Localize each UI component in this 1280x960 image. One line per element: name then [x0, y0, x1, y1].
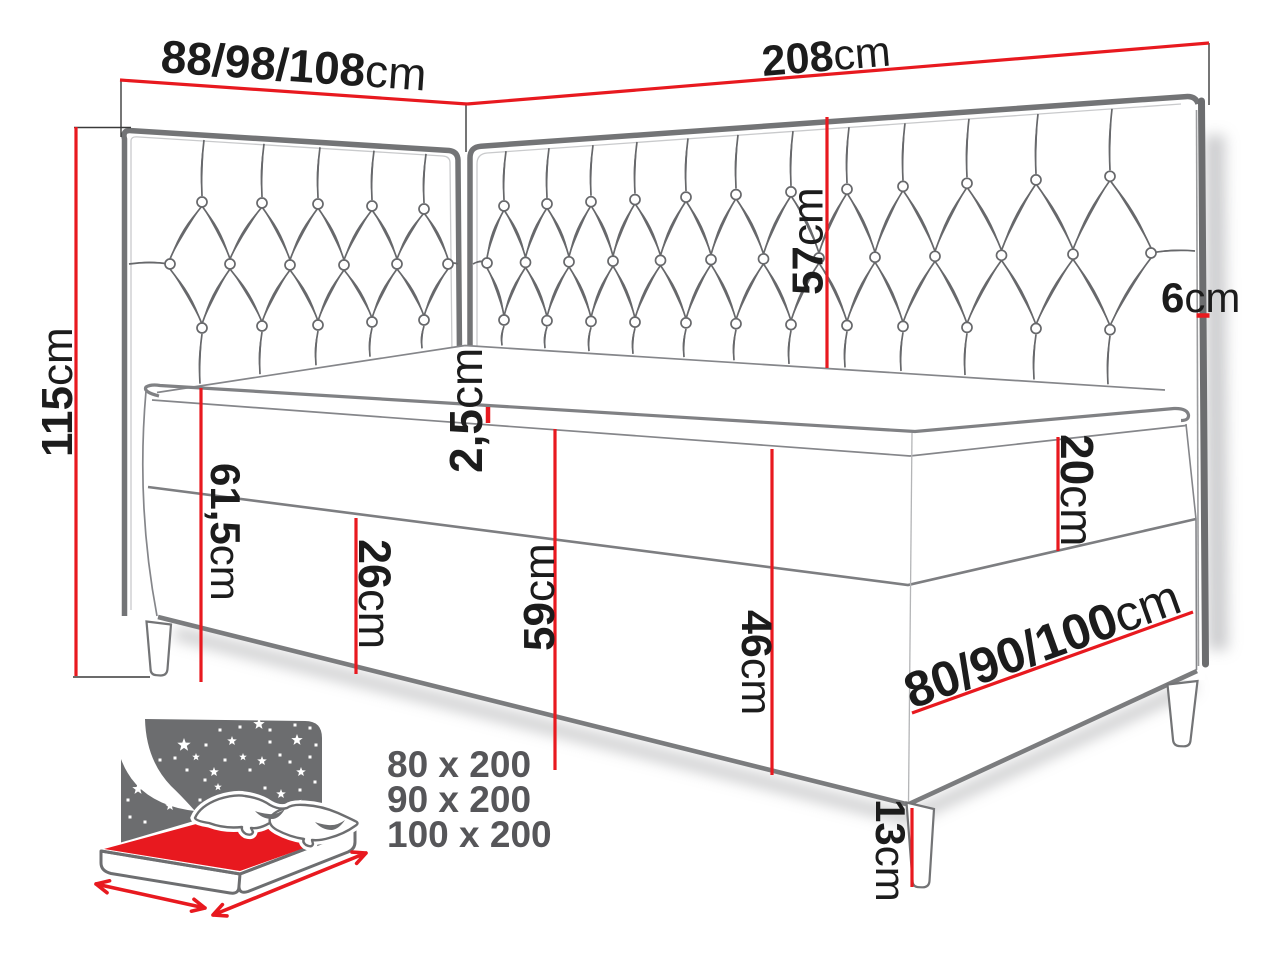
svg-text:26cm: 26cm — [349, 539, 400, 649]
svg-text:13cm: 13cm — [867, 799, 914, 902]
svg-text:46cm: 46cm — [732, 610, 780, 715]
svg-text:6cm: 6cm — [1161, 274, 1240, 321]
svg-text:57cm: 57cm — [784, 187, 833, 295]
svg-text:20cm: 20cm — [1051, 434, 1103, 547]
svg-text:59cm: 59cm — [515, 543, 564, 651]
svg-text:61,5cm: 61,5cm — [202, 463, 249, 601]
svg-text:115cm: 115cm — [33, 327, 82, 457]
svg-text:2,5cm: 2,5cm — [440, 348, 492, 473]
svg-text:100 x 200: 100 x 200 — [387, 814, 552, 855]
